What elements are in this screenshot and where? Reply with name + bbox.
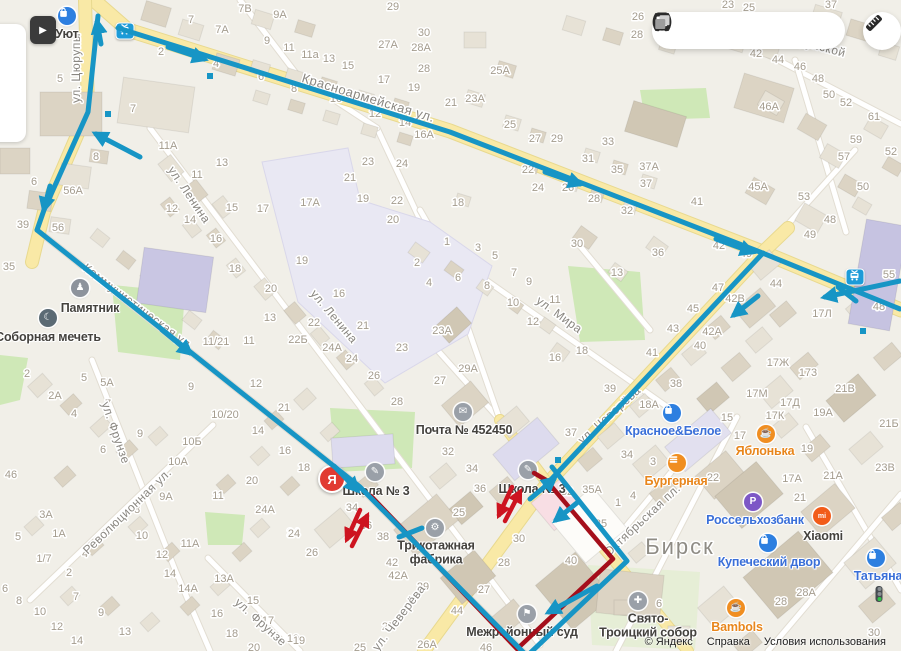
attribution: © ЯндексСправкаУсловия использования — [645, 636, 886, 648]
route-overlay — [0, 0, 901, 651]
blue-route — [162, 330, 190, 353]
traffic-light-icon — [876, 586, 883, 602]
blue-route — [118, 28, 900, 309]
route-stop-tick — [207, 73, 213, 79]
route-stop-tick — [555, 457, 561, 463]
blue-route — [734, 296, 758, 315]
panel-toggle-button[interactable]: ▶ — [30, 16, 56, 44]
help-link[interactable]: Справка — [707, 636, 750, 648]
layers-icon — [652, 12, 672, 32]
collapsed-panel — [0, 24, 26, 142]
blue-route — [96, 134, 140, 157]
map-toolbar — [652, 12, 845, 49]
blue-route — [37, 230, 627, 651]
blue-route — [44, 186, 50, 209]
route-stop-tick — [860, 328, 866, 334]
transport-button[interactable] — [772, 19, 796, 43]
map-canvas[interactable]: 7В9А77А2491111а131517196810121457293027А… — [0, 0, 901, 651]
play-icon: ▶ — [39, 25, 47, 36]
blue-route — [530, 479, 554, 499]
route-stop-tick — [105, 111, 111, 117]
blue-route — [334, 466, 357, 490]
panorama-button[interactable] — [701, 19, 725, 43]
blue-route — [545, 253, 763, 486]
ruler-button[interactable] — [863, 12, 901, 50]
terms-link[interactable]: Условия использования — [764, 636, 886, 648]
copyright-text: © Яндекс — [645, 636, 693, 648]
layers-button[interactable] — [807, 19, 831, 43]
ruler-icon — [863, 12, 885, 34]
photos-button[interactable] — [736, 19, 760, 43]
